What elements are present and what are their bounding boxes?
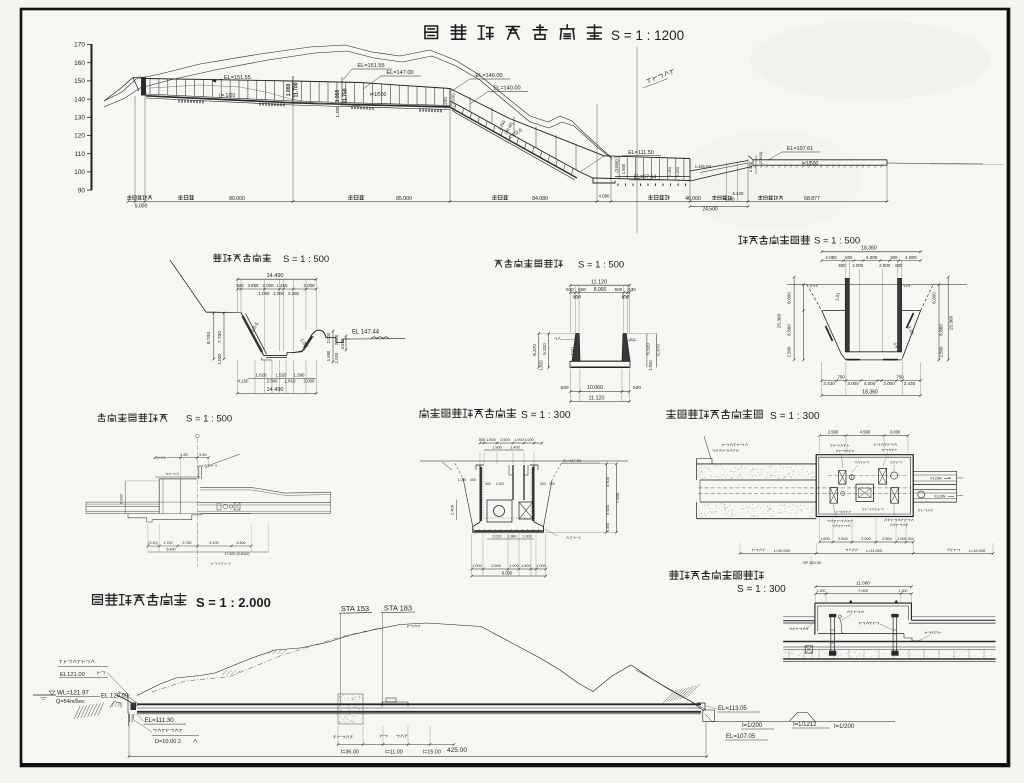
- svg-text:i=1/500: i=1/500: [370, 92, 387, 98]
- svg-text:SP 163.00: SP 163.00: [803, 560, 822, 565]
- svg-text:2.400: 2.400: [450, 504, 455, 515]
- svg-text:46.000: 46.000: [685, 196, 701, 202]
- svg-text:11.700: 11.700: [294, 82, 300, 97]
- svg-text:1.980: 1.980: [508, 535, 517, 539]
- svg-text:2.500: 2.500: [882, 537, 892, 541]
- svg-text:STA 183: STA 183: [384, 604, 412, 613]
- svg-text:530: 530: [560, 385, 568, 391]
- svg-text:11.120: 11.120: [588, 396, 604, 402]
- svg-text:3.430: 3.430: [823, 381, 835, 386]
- svg-text:(4.10): (4.10): [156, 456, 165, 460]
- svg-text:FLOW: FLOW: [935, 495, 946, 499]
- svg-text:5.000: 5.000: [120, 494, 124, 504]
- svg-text:170: 170: [74, 42, 85, 49]
- svg-text:6.400: 6.400: [167, 547, 176, 551]
- svg-text:17.400 (6.50x2): 17.400 (6.50x2): [224, 552, 249, 556]
- svg-text:S = 1 : 500: S = 1 : 500: [186, 414, 232, 425]
- svg-text:130: 130: [74, 115, 85, 122]
- svg-text:15.360: 15.360: [777, 313, 783, 328]
- svg-text:920: 920: [236, 283, 244, 288]
- svg-text:4.380: 4.380: [724, 197, 736, 202]
- svg-text:450: 450: [470, 478, 476, 482]
- svg-text:2.000: 2.000: [334, 334, 339, 345]
- svg-text:1.300: 1.300: [817, 589, 826, 593]
- svg-text:500: 500: [578, 287, 586, 292]
- svg-text:4.590: 4.590: [340, 338, 345, 350]
- svg-text:1.590: 1.590: [326, 350, 331, 361]
- svg-text:4.000: 4.000: [866, 255, 878, 260]
- svg-text:8.700: 8.700: [206, 332, 212, 344]
- svg-text:1.400: 1.400: [510, 446, 520, 450]
- svg-text:8.000: 8.000: [502, 571, 513, 576]
- svg-text:900: 900: [549, 482, 555, 486]
- svg-text:S = 1 : 2.000: S = 1 : 2.000: [196, 595, 271, 610]
- svg-text:7.000: 7.000: [858, 588, 869, 593]
- svg-text:2.000: 2.000: [861, 537, 871, 541]
- svg-text:4.500: 4.500: [860, 430, 871, 435]
- svg-text:1.000: 1.000: [514, 438, 524, 442]
- svg-text:2.250: 2.250: [675, 166, 680, 177]
- svg-text:5.100: 5.100: [210, 541, 219, 545]
- svg-text:EL=146.00: EL=146.00: [475, 73, 502, 79]
- svg-text:2.050: 2.050: [667, 166, 672, 177]
- svg-text:Q=54m/sec: Q=54m/sec: [56, 699, 85, 705]
- svg-text:1.500: 1.500: [486, 438, 496, 442]
- svg-text:2.000: 2.000: [267, 379, 279, 384]
- svg-text:5.000: 5.000: [605, 504, 610, 515]
- svg-text:7.500: 7.500: [615, 492, 620, 503]
- svg-text:85.000: 85.000: [396, 196, 412, 202]
- svg-text:1.500: 1.500: [621, 163, 626, 174]
- svg-text:6.000: 6.000: [787, 292, 792, 304]
- svg-text:i=1/500: i=1/500: [802, 161, 819, 167]
- svg-text:5.60: 5.60: [199, 453, 206, 457]
- svg-text:1.050: 1.050: [539, 360, 544, 371]
- svg-text:90: 90: [78, 187, 86, 194]
- svg-text:530: 530: [566, 287, 574, 292]
- svg-text:500: 500: [845, 255, 853, 260]
- svg-text:5.400: 5.400: [237, 541, 246, 545]
- svg-text:1.500: 1.500: [820, 537, 830, 541]
- svg-text:L=30.000: L=30.000: [774, 548, 791, 553]
- svg-text:160: 160: [74, 60, 85, 67]
- svg-text:80.000: 80.000: [229, 196, 245, 202]
- svg-text:L=11.000: L=11.000: [866, 548, 883, 553]
- svg-text:2.000: 2.000: [326, 332, 331, 343]
- svg-text:500: 500: [540, 482, 546, 486]
- svg-text:STA 153: STA 153: [341, 604, 369, 613]
- svg-text:140: 140: [74, 96, 85, 103]
- svg-text:5.320: 5.320: [646, 343, 651, 355]
- svg-text:4.80: 4.80: [180, 453, 187, 457]
- svg-text:EL=140.00: EL=140.00: [493, 86, 520, 92]
- svg-text:530: 530: [628, 287, 636, 292]
- svg-text:1.300: 1.300: [606, 523, 610, 532]
- svg-text:6.000: 6.000: [932, 292, 937, 304]
- svg-text:S = 1 : 500: S = 1 : 500: [578, 260, 624, 271]
- svg-text:8.000: 8.000: [594, 287, 607, 293]
- svg-text:6.370: 6.370: [656, 344, 661, 356]
- svg-text:3.000: 3.000: [847, 381, 859, 386]
- svg-text:S = 1 : 300: S = 1 : 300: [770, 411, 820, 422]
- svg-text:1.000: 1.000: [509, 564, 519, 568]
- svg-text:100: 100: [74, 169, 85, 176]
- svg-text:4.080: 4.080: [599, 194, 611, 199]
- svg-text:1.000: 1.000: [259, 291, 271, 296]
- svg-text:FLOW: FLOW: [931, 477, 942, 481]
- svg-text:5.320: 5.320: [542, 343, 547, 355]
- svg-text:1.460: 1.460: [277, 283, 289, 288]
- svg-text:D=10.00 2: D=10.00 2: [155, 739, 181, 745]
- svg-text:7.700: 7.700: [217, 331, 223, 343]
- svg-text:i = 1/20: i = 1/20: [219, 93, 236, 99]
- svg-text:68.877: 68.877: [804, 196, 820, 202]
- svg-text:600: 600: [839, 263, 847, 268]
- svg-text:4.000: 4.000: [864, 381, 876, 386]
- svg-text:110: 110: [75, 151, 86, 158]
- svg-text:4.150: 4.150: [238, 379, 250, 384]
- svg-text:750: 750: [837, 375, 845, 380]
- svg-text:5.420: 5.420: [733, 191, 745, 196]
- svg-text:500: 500: [908, 537, 914, 541]
- svg-text:11.750: 11.750: [343, 88, 349, 103]
- svg-text:14.490: 14.490: [266, 273, 283, 279]
- svg-text:1.810: 1.810: [285, 379, 297, 384]
- svg-text:1.000: 1.000: [536, 564, 546, 568]
- svg-text:I=1/1212: I=1/1212: [793, 722, 817, 728]
- svg-text:1.300: 1.300: [335, 106, 340, 118]
- svg-text:EL=113.05: EL=113.05: [718, 706, 747, 712]
- svg-text:1.000: 1.000: [524, 438, 534, 442]
- svg-text:1.050: 1.050: [648, 360, 653, 371]
- svg-text:425.00: 425.00: [447, 747, 467, 754]
- svg-text:WL=121.97: WL=121.97: [57, 690, 89, 697]
- svg-text:1.000: 1.000: [217, 353, 222, 365]
- svg-text:2.000: 2.000: [304, 379, 316, 384]
- svg-text:84.080: 84.080: [532, 196, 548, 202]
- svg-text:2.500: 2.500: [939, 346, 944, 358]
- svg-text:150: 150: [74, 78, 85, 85]
- svg-text:L=15.000: L=15.000: [969, 548, 986, 553]
- svg-text:1.000: 1.000: [334, 352, 339, 363]
- svg-text:2.500: 2.500: [828, 430, 839, 435]
- svg-text:2.400: 2.400: [496, 482, 505, 486]
- svg-text:(7.200): (7.200): [451, 93, 456, 107]
- svg-text:500: 500: [891, 255, 899, 260]
- svg-text:1.390: 1.390: [294, 373, 306, 378]
- svg-text:1.050: 1.050: [335, 90, 341, 103]
- svg-text:S = 1 : 500: S = 1 : 500: [283, 254, 329, 265]
- svg-text:750: 750: [896, 375, 904, 380]
- svg-text:4.080: 4.080: [825, 255, 837, 260]
- svg-text:3.850: 3.850: [248, 283, 260, 288]
- svg-text:1.740: 1.740: [164, 541, 173, 545]
- svg-text:(3.860): (3.860): [614, 159, 619, 173]
- svg-text:24.500: 24.500: [702, 207, 718, 213]
- svg-text:S = 1 : 500: S = 1 : 500: [814, 236, 860, 247]
- svg-text:3.430: 3.430: [904, 381, 916, 386]
- svg-text:EL=151.55: EL=151.55: [224, 75, 251, 81]
- svg-text:EL=151.55: EL=151.55: [357, 63, 384, 69]
- svg-text:2.500: 2.500: [500, 438, 510, 442]
- svg-text:2.750: 2.750: [183, 541, 192, 545]
- svg-text:3.000: 3.000: [890, 430, 901, 435]
- svg-text:2.500: 2.500: [787, 346, 792, 358]
- svg-text:1.000: 1.000: [472, 564, 482, 568]
- svg-text:(2.500): (2.500): [758, 151, 763, 164]
- svg-text:14.490: 14.490: [266, 387, 283, 393]
- svg-text:EL=117.50: EL=117.50: [563, 459, 581, 463]
- svg-text:6.860: 6.860: [939, 324, 944, 336]
- svg-text:1.000: 1.000: [898, 537, 907, 541]
- svg-text:1:01: 1:01: [570, 346, 575, 355]
- svg-text:1.620: 1.620: [256, 373, 268, 378]
- svg-text:6.370: 6.370: [532, 344, 537, 356]
- svg-text:I=1/200: I=1/200: [742, 723, 763, 729]
- svg-text:10.060: 10.060: [587, 385, 603, 391]
- svg-text:6.860: 6.860: [787, 324, 792, 336]
- svg-text:S = 1 : 1200: S = 1 : 1200: [611, 28, 684, 43]
- svg-text:2.020: 2.020: [493, 535, 502, 539]
- svg-text:3.000: 3.000: [883, 381, 895, 386]
- svg-text:1.520: 1.520: [276, 373, 288, 378]
- svg-text:2.000: 2.000: [263, 283, 275, 288]
- svg-text:2.000: 2.000: [852, 263, 864, 268]
- svg-text:EL=111.30: EL=111.30: [145, 717, 175, 724]
- svg-text:500: 500: [485, 482, 491, 486]
- svg-text:1.500: 1.500: [521, 564, 531, 568]
- svg-text:EL=107.05: EL=107.05: [726, 734, 756, 740]
- svg-text:1.900: 1.900: [492, 446, 502, 450]
- svg-text:500: 500: [479, 438, 485, 442]
- svg-text:1.300: 1.300: [899, 589, 908, 593]
- svg-text:S = 1 : 300: S = 1 : 300: [521, 410, 571, 421]
- svg-text:15.360: 15.360: [949, 315, 955, 330]
- svg-text:EL=111.50: EL=111.50: [628, 150, 653, 156]
- svg-text:S = 1 : 300: S = 1 : 300: [737, 584, 786, 595]
- svg-text:4.080: 4.080: [905, 255, 917, 260]
- svg-text:11.000: 11.000: [856, 581, 870, 586]
- svg-text:i=1/6.62: i=1/6.62: [695, 164, 712, 169]
- svg-text:5.000: 5.000: [135, 204, 148, 210]
- svg-text:l=15.00: l=15.00: [423, 750, 441, 756]
- svg-text:l=11.00: l=11.00: [385, 750, 402, 756]
- svg-text:2.000: 2.000: [879, 263, 891, 268]
- svg-text:500: 500: [615, 287, 623, 292]
- svg-text:2.500: 2.500: [491, 564, 501, 568]
- svg-text:[2.10]: [2.10]: [149, 541, 158, 545]
- svg-text:2.260: 2.260: [288, 291, 300, 296]
- svg-text:2.500: 2.500: [838, 537, 848, 541]
- svg-text:1.000: 1.000: [273, 291, 285, 296]
- svg-text:2.000: 2.000: [304, 283, 316, 288]
- svg-text:530: 530: [633, 385, 641, 391]
- svg-text:1.200: 1.200: [443, 97, 448, 109]
- svg-text:120: 120: [74, 133, 85, 140]
- svg-text:I=1/200: I=1/200: [834, 724, 855, 730]
- svg-text:EL=107.61: EL=107.61: [787, 146, 813, 152]
- svg-text:1.050: 1.050: [458, 478, 467, 482]
- svg-text:EL 147.44: EL 147.44: [352, 330, 380, 336]
- svg-text:1.000: 1.000: [286, 84, 292, 97]
- svg-text:EL121.00: EL121.00: [60, 672, 85, 678]
- svg-text:1.500: 1.500: [748, 161, 753, 172]
- svg-text:EL=147.00: EL=147.00: [386, 70, 413, 76]
- svg-text:18.360: 18.360: [862, 389, 878, 395]
- svg-text:3.500: 3.500: [605, 476, 610, 487]
- svg-text:600: 600: [895, 263, 903, 268]
- svg-text:l=36.00: l=36.00: [341, 750, 359, 756]
- svg-text:18.360: 18.360: [861, 245, 877, 251]
- svg-text:11.120: 11.120: [591, 280, 607, 286]
- svg-text:2.000: 2.000: [523, 535, 532, 539]
